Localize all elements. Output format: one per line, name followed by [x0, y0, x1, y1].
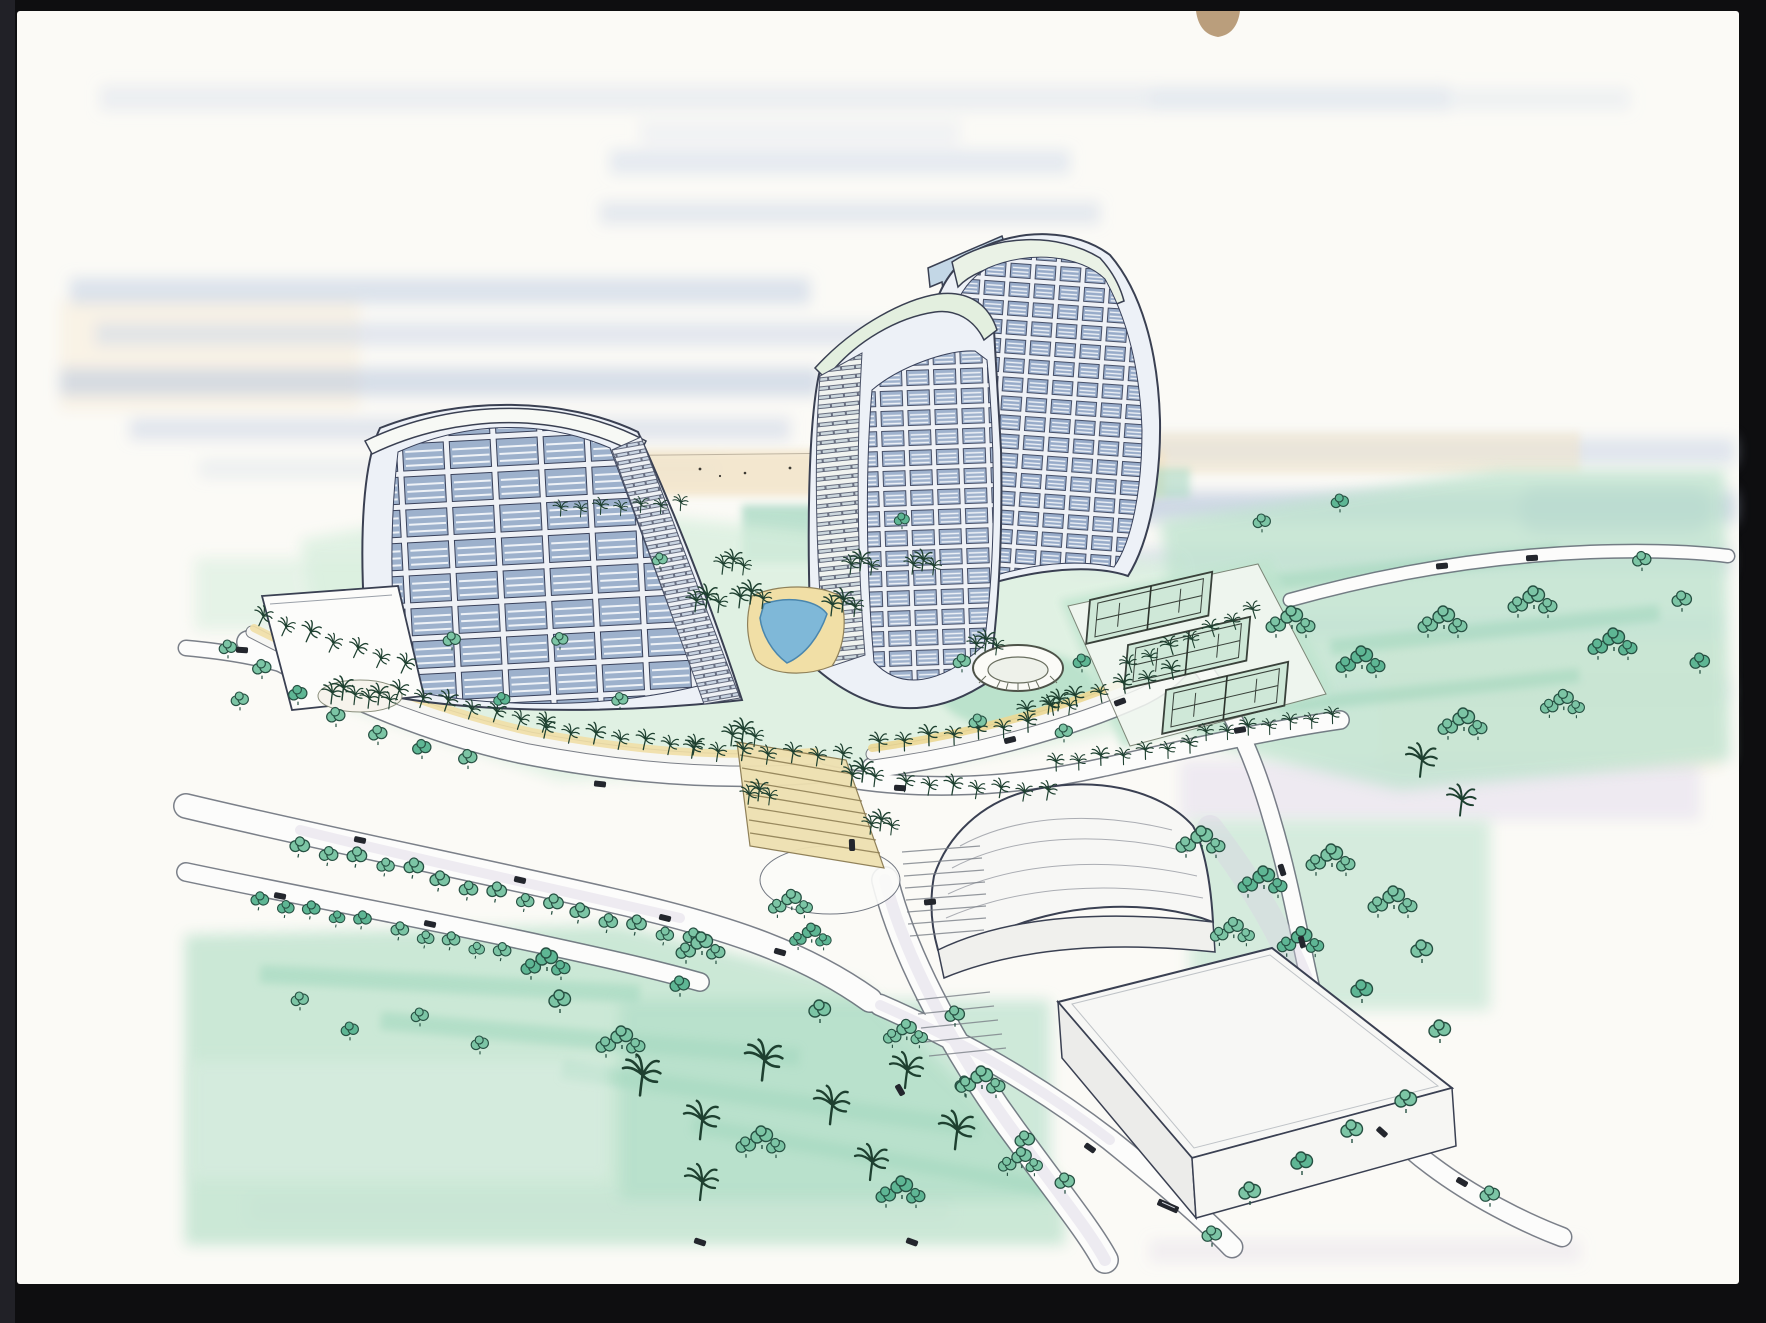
frame-left-edge [0, 0, 15, 1323]
amphitheater [973, 645, 1063, 691]
photo-of-rendering: Aerial watercolor concept rendering of a… [0, 0, 1766, 1323]
tower-middle-windows [867, 351, 993, 680]
watercolor-rendering: Aerial watercolor concept rendering of a… [0, 0, 1766, 1323]
